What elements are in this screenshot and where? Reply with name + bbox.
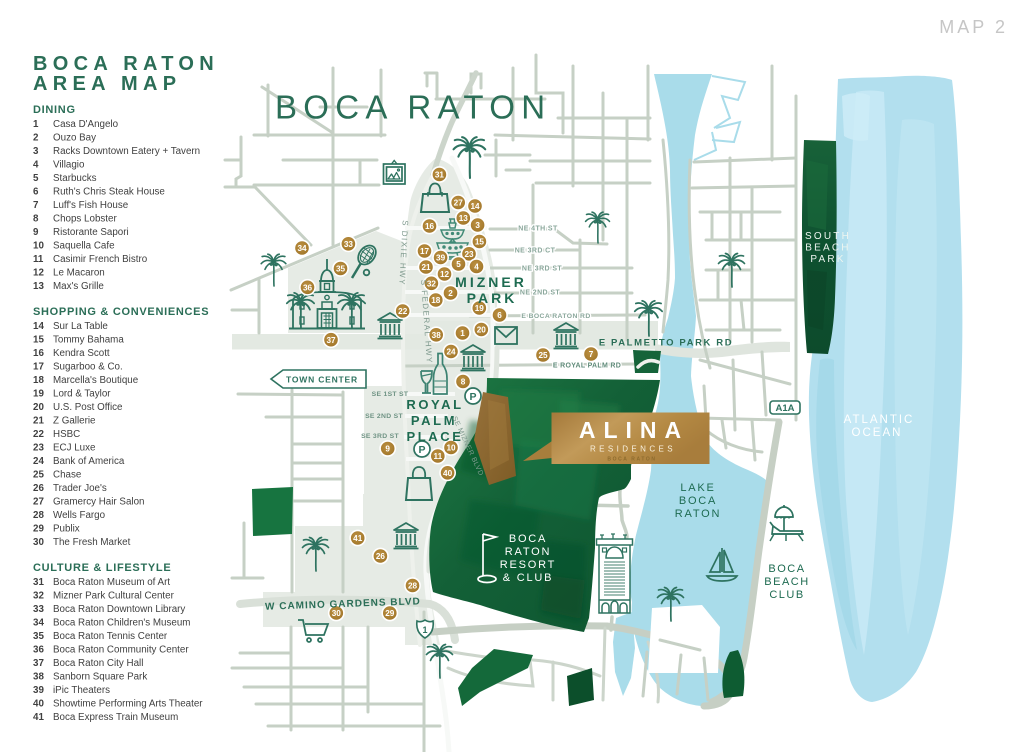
svg-text:27: 27: [33, 497, 44, 508]
svg-text:ECJ Luxe: ECJ Luxe: [53, 443, 96, 454]
svg-text:BOCA: BOCA: [679, 495, 717, 507]
svg-text:DINING: DINING: [33, 104, 76, 116]
svg-text:E PALMETTO PARK RD: E PALMETTO PARK RD: [599, 338, 733, 349]
svg-text:31: 31: [435, 171, 445, 180]
svg-text:PARK: PARK: [810, 254, 845, 265]
svg-text:Publix: Publix: [53, 524, 80, 535]
svg-text:15: 15: [33, 335, 44, 346]
svg-text:1: 1: [33, 119, 39, 130]
svg-text:BOCA RATON: BOCA RATON: [607, 457, 656, 463]
svg-text:P: P: [469, 391, 476, 403]
svg-text:PARK: PARK: [467, 290, 518, 306]
svg-text:Mizner Park Cultural Center: Mizner Park Cultural Center: [53, 591, 175, 602]
svg-text:Boca Express Train Museum: Boca Express Train Museum: [53, 712, 178, 723]
svg-text:35: 35: [33, 631, 44, 642]
svg-text:MIZNER: MIZNER: [455, 274, 527, 290]
svg-text:NE 3RD CT: NE 3RD CT: [515, 248, 556, 255]
svg-text:16: 16: [33, 348, 44, 359]
svg-text:24: 24: [33, 456, 44, 467]
svg-text:RESIDENCES: RESIDENCES: [590, 445, 676, 454]
svg-text:BOCA RATON: BOCA RATON: [275, 89, 551, 126]
svg-text:29: 29: [33, 524, 44, 535]
svg-text:17: 17: [420, 247, 430, 256]
svg-text:BEACH: BEACH: [805, 243, 850, 254]
svg-text:Wells Fargo: Wells Fargo: [53, 510, 106, 521]
svg-text:AREA MAP: AREA MAP: [33, 73, 181, 95]
svg-text:36: 36: [303, 283, 313, 292]
svg-text:CULTURE & LIFESTYLE: CULTURE & LIFESTYLE: [33, 562, 171, 574]
svg-text:Starbucks: Starbucks: [53, 173, 97, 184]
svg-text:& CLUB: & CLUB: [503, 572, 554, 584]
svg-text:1: 1: [460, 329, 465, 338]
svg-text:14: 14: [33, 321, 44, 332]
svg-text:24: 24: [446, 348, 456, 357]
svg-text:23: 23: [464, 250, 474, 259]
svg-text:28: 28: [408, 582, 418, 591]
svg-text:BOCA: BOCA: [768, 563, 805, 575]
svg-text:38: 38: [33, 672, 44, 683]
svg-text:iPic Theaters: iPic Theaters: [53, 685, 110, 696]
svg-text:Gramercy Hair Salon: Gramercy Hair Salon: [53, 497, 144, 508]
svg-text:1: 1: [422, 625, 427, 635]
svg-text:Luff's Fish House: Luff's Fish House: [53, 200, 129, 211]
svg-text:5: 5: [33, 173, 39, 184]
svg-text:27: 27: [454, 199, 464, 208]
svg-text:29: 29: [385, 609, 395, 618]
svg-text:U.S. Post Office: U.S. Post Office: [53, 402, 123, 413]
svg-text:32: 32: [33, 591, 44, 602]
svg-text:Le Macaron: Le Macaron: [53, 268, 105, 279]
svg-text:37: 37: [33, 658, 44, 669]
svg-text:2: 2: [33, 133, 39, 144]
svg-text:SE 3RD ST: SE 3RD ST: [361, 433, 399, 440]
svg-text:39: 39: [33, 685, 44, 696]
svg-text:Kendra Scott: Kendra Scott: [53, 348, 110, 359]
svg-text:39: 39: [436, 254, 446, 263]
svg-text:Z Gallerie: Z Gallerie: [53, 416, 96, 427]
svg-text:Casa D'Angelo: Casa D'Angelo: [53, 119, 119, 130]
svg-text:10: 10: [446, 444, 456, 453]
svg-text:MAP 2: MAP 2: [939, 17, 1008, 37]
svg-text:Marcella's Boutique: Marcella's Boutique: [53, 375, 139, 386]
svg-text:BOCA RATON: BOCA RATON: [33, 53, 219, 75]
svg-text:PLACE: PLACE: [406, 429, 463, 444]
svg-text:Chase: Chase: [53, 470, 82, 481]
svg-text:BEACH: BEACH: [764, 576, 809, 588]
svg-text:37: 37: [326, 336, 336, 345]
svg-text:Boca Raton Community Center: Boca Raton Community Center: [53, 645, 189, 656]
svg-text:RATON: RATON: [675, 508, 722, 520]
svg-text:Boca Raton Children's Museum: Boca Raton Children's Museum: [53, 618, 190, 629]
svg-text:4: 4: [474, 263, 479, 272]
svg-text:ROYAL: ROYAL: [406, 397, 463, 412]
svg-text:Saquella Cafe: Saquella Cafe: [53, 241, 115, 252]
svg-text:28: 28: [33, 510, 44, 521]
svg-text:41: 41: [353, 534, 363, 543]
svg-text:26: 26: [33, 483, 44, 494]
svg-text:18: 18: [431, 296, 441, 305]
svg-text:RATON: RATON: [505, 546, 552, 558]
svg-text:P: P: [418, 444, 425, 456]
svg-text:6: 6: [33, 187, 39, 198]
svg-text:30: 30: [332, 609, 342, 618]
svg-text:Casimir French Bistro: Casimir French Bistro: [53, 254, 148, 265]
svg-text:20: 20: [33, 402, 44, 413]
svg-text:BOCA: BOCA: [509, 533, 547, 545]
svg-text:12: 12: [33, 268, 44, 279]
svg-text:OCEAN: OCEAN: [852, 427, 903, 439]
svg-text:NE 4TH ST: NE 4TH ST: [518, 226, 558, 233]
svg-text:Lord & Taylor: Lord & Taylor: [53, 389, 111, 400]
svg-text:9: 9: [385, 445, 390, 454]
svg-text:22: 22: [398, 307, 408, 316]
svg-text:Max's Grille: Max's Grille: [53, 281, 104, 292]
svg-text:ALINA: ALINA: [579, 417, 689, 443]
svg-text:21: 21: [33, 416, 44, 427]
svg-text:34: 34: [297, 244, 307, 253]
svg-text:Showtime Performing Arts Theat: Showtime Performing Arts Theater: [53, 699, 203, 710]
svg-text:31: 31: [33, 577, 44, 588]
svg-text:Sanborn Square Park: Sanborn Square Park: [53, 672, 147, 683]
svg-text:HSBC: HSBC: [53, 429, 80, 440]
svg-text:10: 10: [33, 241, 44, 252]
svg-text:Sugarboo & Co.: Sugarboo & Co.: [53, 362, 123, 373]
svg-text:Villagio: Villagio: [53, 160, 85, 171]
svg-text:15: 15: [475, 238, 485, 247]
svg-text:3: 3: [475, 221, 480, 230]
svg-text:11: 11: [433, 452, 442, 461]
svg-text:25: 25: [538, 351, 548, 360]
svg-text:ATLANTIC: ATLANTIC: [844, 414, 915, 426]
svg-text:Trader Joe's: Trader Joe's: [53, 483, 107, 494]
svg-text:NE 3RD ST: NE 3RD ST: [522, 266, 562, 273]
svg-text:4: 4: [33, 160, 39, 171]
svg-text:13: 13: [459, 214, 469, 223]
svg-text:22: 22: [33, 429, 44, 440]
svg-text:36: 36: [33, 645, 44, 656]
svg-text:Boca Raton City Hall: Boca Raton City Hall: [53, 658, 143, 669]
svg-text:E ROYAL PALM RD: E ROYAL PALM RD: [553, 363, 621, 370]
svg-text:40: 40: [443, 469, 453, 478]
svg-text:33: 33: [344, 240, 354, 249]
svg-text:SE 1ST ST: SE 1ST ST: [372, 391, 409, 398]
svg-text:7: 7: [589, 350, 594, 359]
svg-text:Tommy Bahama: Tommy Bahama: [53, 335, 124, 346]
svg-text:Boca Raton Downtown Library: Boca Raton Downtown Library: [53, 604, 185, 615]
svg-text:35: 35: [336, 265, 346, 274]
svg-text:A1A: A1A: [775, 403, 794, 414]
svg-text:18: 18: [33, 375, 44, 386]
svg-text:13: 13: [33, 281, 44, 292]
svg-text:TOWN CENTER: TOWN CENTER: [286, 375, 358, 385]
svg-text:6: 6: [497, 311, 502, 320]
svg-text:8: 8: [33, 214, 39, 225]
svg-text:Boca Raton Museum of Art: Boca Raton Museum of Art: [53, 577, 170, 588]
svg-text:20: 20: [477, 326, 487, 335]
svg-text:7: 7: [33, 200, 39, 211]
svg-text:23: 23: [33, 443, 44, 454]
svg-text:17: 17: [33, 362, 44, 373]
svg-text:3: 3: [33, 146, 39, 157]
svg-text:26: 26: [376, 552, 386, 561]
svg-text:NE 2ND ST: NE 2ND ST: [520, 290, 560, 297]
svg-text:14: 14: [470, 202, 480, 211]
svg-text:Boca Raton Tennis Center: Boca Raton Tennis Center: [53, 631, 168, 642]
svg-text:8: 8: [461, 378, 466, 387]
svg-text:12: 12: [440, 270, 450, 279]
svg-text:33: 33: [33, 604, 44, 615]
svg-text:PALM: PALM: [411, 413, 457, 428]
svg-text:25: 25: [33, 470, 44, 481]
svg-text:SHOPPING & CONVENIENCES: SHOPPING & CONVENIENCES: [33, 306, 209, 318]
svg-text:Chops Lobster: Chops Lobster: [53, 214, 117, 225]
svg-text:5: 5: [456, 260, 461, 269]
svg-text:CLUB: CLUB: [769, 589, 804, 601]
svg-text:41: 41: [33, 712, 44, 723]
svg-text:2: 2: [448, 289, 453, 298]
svg-text:Bank of America: Bank of America: [53, 456, 125, 467]
svg-text:RESORT: RESORT: [500, 559, 556, 571]
svg-text:16: 16: [425, 222, 435, 231]
svg-text:30: 30: [33, 537, 44, 548]
svg-text:SE 2ND ST: SE 2ND ST: [365, 413, 403, 420]
svg-text:Ouzo Bay: Ouzo Bay: [53, 133, 96, 144]
svg-text:9: 9: [33, 227, 39, 238]
svg-text:Racks Downtown Eatery + Tavern: Racks Downtown Eatery + Tavern: [53, 146, 200, 157]
svg-text:Sur La Table: Sur La Table: [53, 321, 108, 332]
svg-text:40: 40: [33, 699, 44, 710]
svg-text:19: 19: [33, 389, 44, 400]
svg-text:21: 21: [421, 263, 431, 272]
svg-text:SOUTH: SOUTH: [805, 231, 851, 242]
svg-text:LAKE: LAKE: [680, 482, 715, 494]
svg-text:Ruth's Chris Steak House: Ruth's Chris Steak House: [53, 187, 165, 198]
svg-text:E BOCA RATON RD: E BOCA RATON RD: [521, 313, 590, 320]
svg-text:11: 11: [33, 254, 44, 265]
svg-text:Ristorante Sapori: Ristorante Sapori: [53, 227, 129, 238]
svg-text:34: 34: [33, 618, 44, 629]
svg-text:The Fresh Market: The Fresh Market: [53, 537, 131, 548]
